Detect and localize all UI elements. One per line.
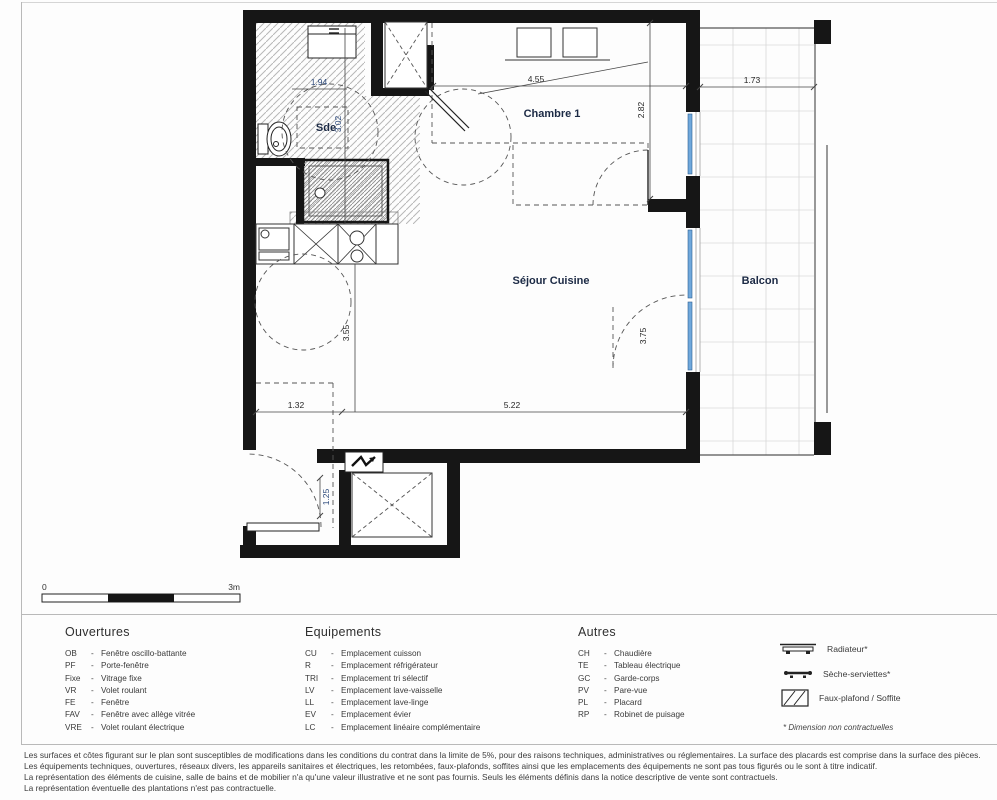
legend-dash: - — [604, 697, 614, 709]
legend-abbr: PV — [578, 685, 604, 697]
legend-label: Emplacement tri sélectif — [341, 673, 428, 685]
legend-label: Garde-corps — [614, 673, 660, 685]
nightstand — [517, 28, 551, 57]
disclaimer-line: La représentation éventuelle des plantat… — [24, 783, 994, 794]
legend-label: Fenêtre oscillo-battante — [101, 648, 187, 660]
legend-abbr: LL — [305, 697, 331, 709]
legend-label: Vitrage fixe — [101, 673, 142, 685]
entry-door-leaf — [247, 523, 319, 531]
legend-abbr: PL — [578, 697, 604, 709]
legend-item: GC-Garde-corps — [578, 673, 685, 685]
frame-line-legend-bottom — [21, 744, 997, 745]
vanity — [308, 26, 356, 58]
legend-item: Fixe-Vitrage fixe — [65, 673, 195, 685]
legend-symbol-seche-serviettes: Sèche-serviettes* — [783, 669, 890, 679]
kitchen-counter — [256, 224, 398, 264]
legend-item: TE-Tableau électrique — [578, 660, 685, 672]
balcony-edges — [700, 28, 827, 455]
dim-entry-width: 1.32 — [288, 400, 305, 410]
balcony-post-bottom — [814, 422, 831, 455]
legend-dash: - — [91, 697, 101, 709]
legend-abbr: EV — [305, 709, 331, 721]
scale-max: 3m — [228, 582, 240, 592]
room-label-chambre1: Chambre 1 — [524, 108, 581, 120]
placard-entry — [352, 473, 432, 537]
legend-label: Placard — [614, 697, 642, 709]
cooktop-burner — [351, 250, 363, 262]
legend-abbr: RP — [578, 709, 604, 721]
legend-symbol-faux-plafond: Faux-plafond / Soffite — [781, 689, 901, 707]
frame-line-legend-top — [21, 614, 997, 615]
legend-dash: - — [331, 648, 341, 660]
cooktop-burner — [350, 231, 364, 245]
legend-section-equipements: Equipements CU-Emplacement cuisson R-Emp… — [305, 625, 480, 734]
bed-zone — [513, 143, 648, 205]
legend-dash: - — [604, 648, 614, 660]
legend-abbr: R — [305, 660, 331, 672]
legend-label: Emplacement cuisson — [341, 648, 421, 660]
legend-item: OB-Fenêtre oscillo-battante — [65, 648, 195, 660]
scale-bar: 0 3m — [42, 582, 240, 602]
disclaimer: Les surfaces et côtes figurant sur le pl… — [24, 750, 994, 794]
legend-abbr: CH — [578, 648, 604, 660]
legend-item: LC-Emplacement linéaire complémentaire — [305, 722, 480, 734]
entry-door-arc — [248, 454, 321, 527]
legend-item: FAV-Fenêtre avec allège vitrée — [65, 709, 195, 721]
legend-abbr: VRE — [65, 722, 91, 734]
legend-label: Emplacement lave-vaisselle — [341, 685, 442, 697]
legend-dash: - — [91, 685, 101, 697]
floor-plan-sheet: Sde Chambre 1 Séjour Cuisine Balcon 1.94… — [0, 0, 997, 800]
porte-fenetre-glazing-upper — [688, 230, 692, 298]
legend-item: PV-Pare-vue — [578, 685, 685, 697]
legend-label: Emplacement réfrigérateur — [341, 660, 438, 672]
legend-label: Fenêtre avec allège vitrée — [101, 709, 195, 721]
legend-item: PF-Porte-fenêtre — [65, 660, 195, 672]
legend-abbr: FE — [65, 697, 91, 709]
legend-title-autres: Autres — [578, 625, 685, 639]
legend-label: Porte-fenêtre — [101, 660, 149, 672]
legend-label: Robinet de puisage — [614, 709, 685, 721]
legend-abbr: LV — [305, 685, 331, 697]
dim-sde-depth: 3.02 — [333, 115, 343, 132]
legend-label: Emplacement linéaire complémentaire — [341, 722, 480, 734]
legend-label: Pare-vue — [614, 685, 647, 697]
legend-item: CU-Emplacement cuisson — [305, 648, 480, 660]
legend-dash: - — [604, 709, 614, 721]
room-label-balcon: Balcon — [742, 275, 779, 287]
legend-label: Emplacement évier — [341, 709, 411, 721]
legend-label: Volet roulant électrique — [101, 722, 184, 734]
legend-label: Tableau électrique — [614, 660, 680, 672]
legend-dash: - — [604, 660, 614, 672]
legend-item: FE-Fenêtre — [65, 697, 195, 709]
legend-item: VRE-Volet roulant électrique — [65, 722, 195, 734]
legend-abbr: CU — [305, 648, 331, 660]
legend-note: * Dimension non contractuelles — [783, 723, 893, 732]
legend-symbol-radiateur: Radiateur* — [779, 643, 868, 655]
legend-title-ouvertures: Ouvertures — [65, 625, 195, 639]
balcony-tiles — [700, 28, 814, 455]
legend-abbr: OB — [65, 648, 91, 660]
porte-fenetre-glazing-lower — [688, 302, 692, 370]
chambre-door-arc — [593, 150, 648, 205]
radiateur-icon — [779, 643, 817, 655]
legend-section-autres: Autres CH-Chaudière TE-Tableau électriqu… — [578, 625, 685, 722]
legend-item: RP-Robinet de puisage — [578, 709, 685, 721]
room-label-sejour: Séjour Cuisine — [512, 275, 589, 287]
legend-label: Emplacement lave-linge — [341, 697, 428, 709]
shower-drain — [315, 188, 325, 198]
windows — [686, 112, 700, 372]
legend-label-seche-serviettes: Sèche-serviettes* — [823, 669, 890, 679]
scale-zero: 0 — [42, 582, 47, 592]
legend-abbr: GC — [578, 673, 604, 685]
legend-dash: - — [331, 685, 341, 697]
legend-label-radiateur: Radiateur* — [827, 644, 868, 654]
faux-plafond-icon — [781, 689, 809, 707]
legend-dash: - — [604, 673, 614, 685]
disclaimer-line: Les surfaces et côtes figurant sur le pl… — [24, 750, 994, 761]
legend-abbr: PF — [65, 660, 91, 672]
legend-dash: - — [604, 685, 614, 697]
legend-item: TRI-Emplacement tri sélectif — [305, 673, 480, 685]
legend-dash: - — [331, 722, 341, 734]
dim-chambre-depth: 2.82 — [636, 101, 646, 118]
legend-dash: - — [331, 709, 341, 721]
legend-title-equipements: Equipements — [305, 625, 480, 639]
legend-abbr: LC — [305, 722, 331, 734]
tableau-electrique — [345, 452, 383, 472]
legend-dash: - — [91, 648, 101, 660]
turning-circle-hall — [415, 89, 511, 185]
dim-kitchen-depth: 3.55 — [341, 324, 351, 341]
legend-dash: - — [91, 673, 101, 685]
legend-dash: - — [331, 697, 341, 709]
legend-abbr: TRI — [305, 673, 331, 685]
legend-abbr: Fixe — [65, 673, 91, 685]
legend-item: LV-Emplacement lave-vaisselle — [305, 685, 480, 697]
disclaimer-line: Les équipements techniques, ouvertures, … — [24, 761, 994, 772]
legend-label: Volet roulant — [101, 685, 147, 697]
legend-item: VR-Volet roulant — [65, 685, 195, 697]
legend-item: LL-Emplacement lave-linge — [305, 697, 480, 709]
placard-top — [385, 22, 427, 88]
legend-label: Fenêtre — [101, 697, 129, 709]
legend-label-faux-plafond: Faux-plafond / Soffite — [819, 693, 901, 703]
legend-dash: - — [91, 660, 101, 672]
dim-balcon-width: 1.73 — [744, 75, 761, 85]
kitchen-faucet — [261, 230, 269, 238]
legend-section-ouvertures: Ouvertures OB-Fenêtre oscillo-battante P… — [65, 625, 195, 734]
legend-item: EV-Emplacement évier — [305, 709, 480, 721]
disclaimer-line: La représentation des éléments de cuisin… — [24, 772, 994, 783]
dim-sejour-width: 5.22 — [504, 400, 521, 410]
legend-abbr: VR — [65, 685, 91, 697]
legend-abbr: FAV — [65, 709, 91, 721]
legend-item: R-Emplacement réfrigérateur — [305, 660, 480, 672]
porte-fenetre-arc — [613, 295, 686, 368]
dim-porte-fenetre: 3.75 — [638, 327, 648, 344]
nightstand — [563, 28, 597, 57]
legend-abbr: TE — [578, 660, 604, 672]
legend-dash: - — [331, 660, 341, 672]
window-chambre-glazing — [688, 114, 692, 174]
dim-sde-width: 1.94 — [311, 77, 328, 87]
dim-entry-depth: 1.25 — [321, 488, 331, 505]
legend-dash: - — [91, 709, 101, 721]
legend-label: Chaudière — [614, 648, 652, 660]
bedroom-furniture — [505, 28, 610, 60]
turning-circle-sejour — [255, 254, 351, 350]
legend-item: CH-Chaudière — [578, 648, 685, 660]
seche-serviettes-icon — [783, 669, 813, 679]
balcony-post-top — [814, 20, 831, 44]
legend-dash: - — [331, 673, 341, 685]
floor-plan-drawing: Sde Chambre 1 Séjour Cuisine Balcon 1.94… — [0, 0, 997, 614]
legend-dash: - — [91, 722, 101, 734]
dim-chambre-width: 4.55 — [528, 74, 545, 84]
legend-item: PL-Placard — [578, 697, 685, 709]
